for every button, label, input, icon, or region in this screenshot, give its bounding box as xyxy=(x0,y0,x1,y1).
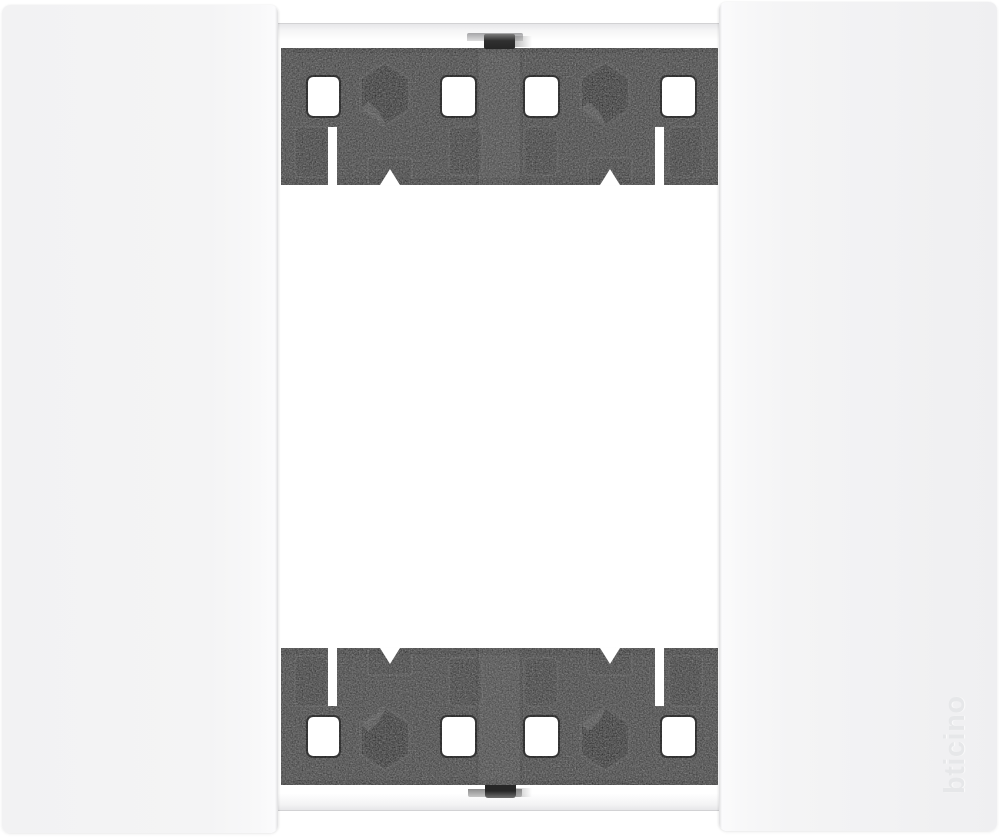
bottom-mounting-rail xyxy=(281,648,718,785)
right-cover-panel: bticino xyxy=(719,2,997,831)
wall-plate-product-photo: bticino xyxy=(0,0,999,838)
top-clip-tab xyxy=(466,32,532,49)
top-clip-shadow xyxy=(515,36,532,47)
brand-logo-text: bticino xyxy=(941,678,969,794)
mounting-rails xyxy=(278,48,718,785)
bottom-clip-shadow xyxy=(516,788,532,797)
left-cover-panel xyxy=(2,5,278,833)
bottom-clip-tab xyxy=(466,784,532,799)
top-mounting-rail xyxy=(281,48,718,185)
top-clip-core xyxy=(484,34,515,49)
bottom-clip-core xyxy=(485,785,516,798)
brand-logo: bticino xyxy=(941,678,969,794)
